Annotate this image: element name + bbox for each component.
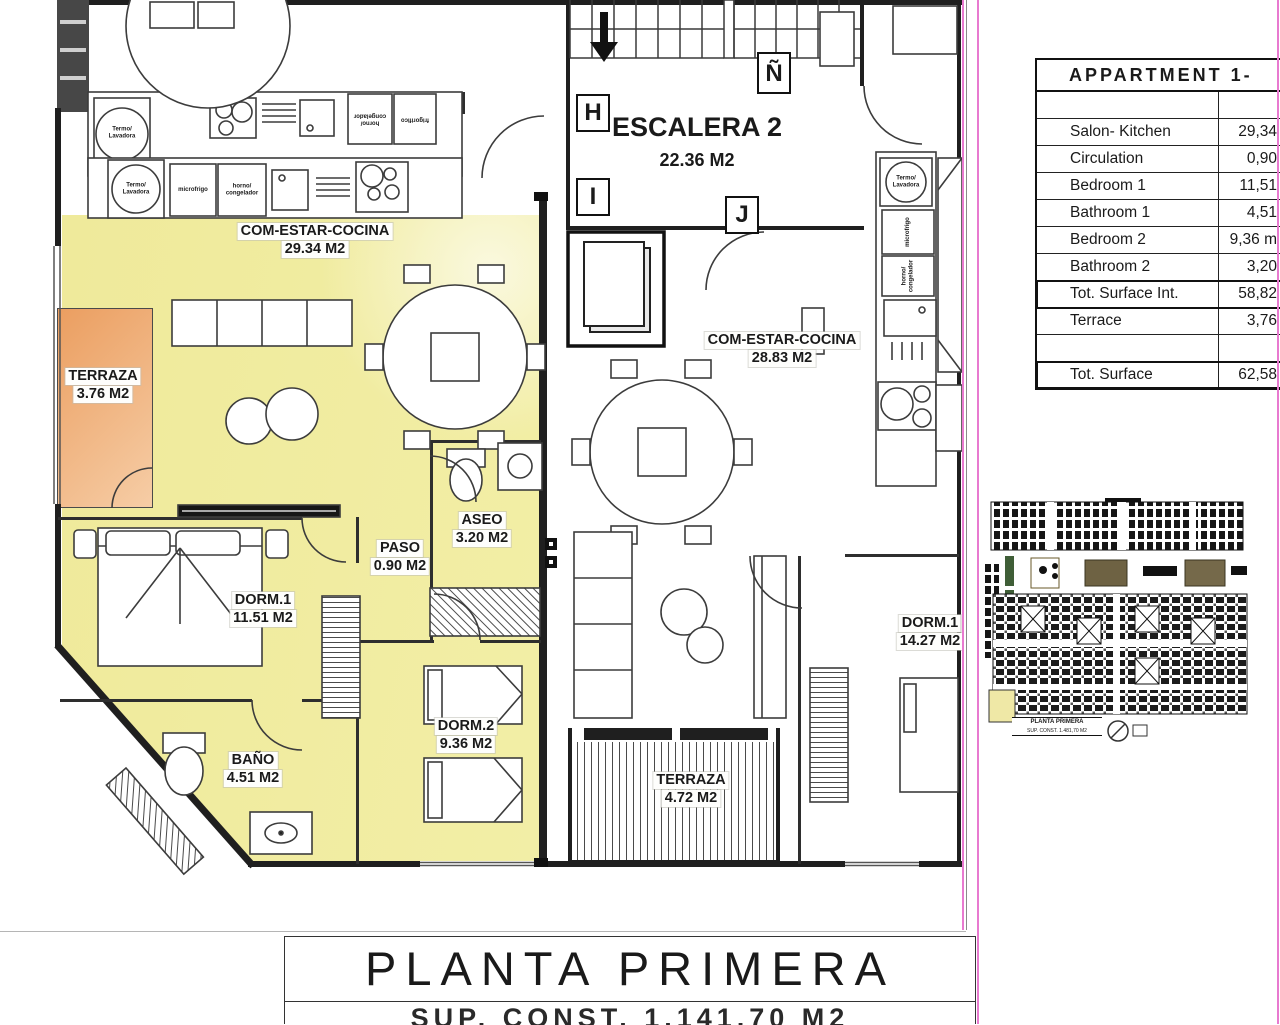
room-area: 9.36 M2 <box>437 736 495 753</box>
table-row-spacer <box>1037 92 1280 119</box>
room-name: COM-ESTAR-COCINA <box>238 223 393 240</box>
room-label-living-left: COM-ESTAR-COCINA 29.34 M2 <box>238 223 393 258</box>
kitchen-left <box>88 92 462 218</box>
room-area: 4.72 M2 <box>662 790 720 807</box>
boundary-line-pink <box>962 0 964 930</box>
key-plan-subcaption: SUP. CONST. 1.481,70 M2 <box>1012 727 1102 736</box>
room-label-living-right: COM-ESTAR-COCINA 28.83 M2 <box>705 332 860 367</box>
room-name: ASEO <box>458 512 505 529</box>
room-area: 4.51 M2 <box>224 770 282 787</box>
room-label-bedroom1-right: DORM.1 14.27 M2 <box>897 615 963 650</box>
appliance-label-oven: horno/ congelador <box>354 113 386 126</box>
table-row-spacer <box>1037 335 1280 362</box>
room-label-bedroom2-left: DORM.2 9.36 M2 <box>435 718 497 753</box>
table-row-total: Tot. Surface 62,58 <box>1037 362 1280 388</box>
room-label-terrace-left: TERRAZA 3.76 M2 <box>65 368 140 403</box>
room-area: 22.36 M2 <box>656 150 737 170</box>
room-name: ESCALERA 2 <box>609 112 785 142</box>
room-label-hall: PASO 0.90 M2 <box>371 540 429 575</box>
table-row: Terrace 3,76 <box>1037 308 1280 335</box>
room-area: 0.90 M2 <box>371 558 429 575</box>
room-name: BAÑO <box>229 752 278 769</box>
stair-treads <box>570 0 860 58</box>
room-area: 14.27 M2 <box>897 633 963 650</box>
area-table-title: APPARTMENT 1- <box>1037 60 1280 92</box>
kitchen-right <box>876 152 962 486</box>
table-row: Salon- Kitchen 29,34 <box>1037 119 1280 146</box>
appliance-label-microfridge: microfrigo <box>178 187 208 194</box>
appliance-label-boiler: Termo/ Lavadora <box>893 176 920 189</box>
appliance-label-boiler: Termo/ Lavadora <box>123 183 150 196</box>
table-row: Bathroom 2 3,20 <box>1037 254 1280 281</box>
grid-marker-n: Ñ <box>757 52 791 94</box>
area-table: APPARTMENT 1- Salon- Kitchen 29,34 Circu… <box>1035 58 1280 390</box>
appliance-label-microfridge: microfrigo <box>905 217 912 247</box>
room-area: 3.20 M2 <box>453 530 511 547</box>
room-name: TERRAZA <box>653 772 728 789</box>
boundary-line-pink <box>977 0 979 1024</box>
key-plan-thumbnail <box>985 498 1253 746</box>
table-row: Bedroom 2 9,36 m <box>1037 227 1280 254</box>
room-name: PASO <box>377 540 423 557</box>
drawing-title: PLANTA PRIMERA <box>285 937 975 1002</box>
elevator <box>568 232 664 346</box>
room-area: 29.34 M2 <box>282 241 348 258</box>
room-label-terrace-right: TERRAZA 4.72 M2 <box>653 772 728 807</box>
room-name: TERRAZA <box>65 368 140 385</box>
table-row: Bathroom 1 4,51 <box>1037 200 1280 227</box>
title-block: PLANTA PRIMERA SUP. CONST. 1.141,70 M2 <box>284 936 976 1024</box>
grid-marker-h: H <box>576 94 610 132</box>
boundary-line-pink <box>1277 0 1279 1024</box>
appliance-label-oven: horno/ congelador <box>902 260 915 292</box>
sheet-bottom-line <box>0 931 966 932</box>
table-row: Circulation 0,90 <box>1037 146 1280 173</box>
drawing-subtitle-clipped: SUP. CONST. 1.141,70 M2 <box>285 1002 975 1025</box>
room-label-toilet: ASEO 3.20 M2 <box>453 512 511 547</box>
table-row-total-interior: Tot. Surface Int. 58,82 <box>1037 281 1280 308</box>
grid-marker-i: I <box>576 178 610 216</box>
sheet-divider-line <box>966 0 967 930</box>
appliance-label-fridge: frigorifico <box>401 116 429 123</box>
room-label-stair: ESCALERA 2 22.36 M2 <box>609 112 785 172</box>
room-label-bedroom1-left: DORM.1 11.51 M2 <box>230 592 296 627</box>
room-name: DORM.2 <box>435 718 497 735</box>
appliance-label-oven: horno/ congelador <box>226 184 258 197</box>
room-area: 28.83 M2 <box>749 350 815 367</box>
grid-marker-j: J <box>725 196 759 234</box>
room-name: COM-ESTAR-COCINA <box>705 332 860 349</box>
room-name: DORM.1 <box>232 592 294 609</box>
appliance-label-boiler: Termo/ Lavadora <box>109 127 136 140</box>
key-plan-blocks <box>985 498 1247 741</box>
room-area: 3.76 M2 <box>74 386 132 403</box>
room-label-bathroom-left: BAÑO 4.51 M2 <box>224 752 282 787</box>
floorplan-sheet: { "plan": { "grid_markers": { "m1": "H",… <box>0 0 1280 1024</box>
room-area: 11.51 M2 <box>230 610 296 627</box>
room-name: DORM.1 <box>899 615 961 632</box>
table-row: Bedroom 1 11,51 <box>1037 173 1280 200</box>
